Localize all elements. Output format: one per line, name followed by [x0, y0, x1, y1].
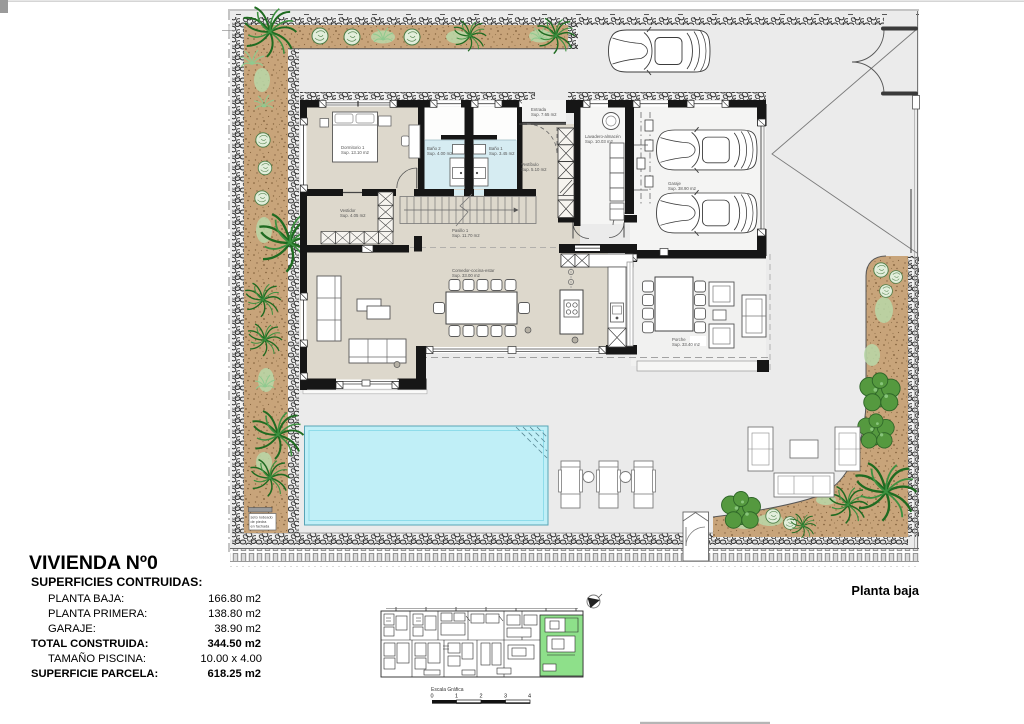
svg-text:2: 2 [480, 694, 483, 700]
svg-text:344.50 m2: 344.50 m2 [208, 638, 262, 650]
svg-text:seto rodeado: seto rodeado [251, 516, 273, 520]
svg-text:138.80 m2: 138.80 m2 [208, 608, 261, 620]
svg-text:VIVIENDA Nº0: VIVIENDA Nº0 [29, 552, 158, 574]
svg-text:Sup. 38.90 m2: Sup. 38.90 m2 [668, 186, 697, 191]
svg-text:1: 1 [455, 694, 458, 700]
svg-text:SUPERFICIE PARCELA:: SUPERFICIE PARCELA: [31, 668, 158, 680]
svg-text:Sup. 4.00 m2: Sup. 4.00 m2 [427, 151, 453, 156]
svg-text:166.80 m2: 166.80 m2 [208, 593, 261, 605]
svg-text:10.00 x 4.00: 10.00 x 4.00 [200, 653, 262, 665]
svg-text:Sup. 4.05 m2: Sup. 4.05 m2 [340, 213, 366, 218]
svg-text:Sup. 33.40 m2: Sup. 33.40 m2 [672, 342, 701, 347]
svg-text:618.25 m2: 618.25 m2 [208, 668, 262, 680]
svg-text:PLANTA PRIMERA:: PLANTA PRIMERA: [48, 608, 147, 620]
svg-text:Sup. 13.10 m2: Sup. 13.10 m2 [341, 150, 370, 155]
svg-text:0: 0 [431, 694, 434, 700]
svg-text:Sup. 10.03 m2: Sup. 10.03 m2 [585, 139, 614, 144]
svg-text:TOTAL CONSTRUIDA:: TOTAL CONSTRUIDA: [31, 638, 148, 650]
svg-text:en fachada: en fachada [251, 525, 271, 529]
svg-text:PLANTA BAJA:: PLANTA BAJA: [48, 593, 124, 605]
svg-text:TAMAÑO PISCINA:: TAMAÑO PISCINA: [48, 652, 146, 665]
svg-text:3: 3 [504, 694, 507, 700]
svg-text:38.90 m2: 38.90 m2 [214, 623, 261, 635]
svg-text:Sup. 33.00 m2: Sup. 33.00 m2 [452, 273, 481, 278]
svg-text:Sup. 5.10 m2: Sup. 5.10 m2 [521, 167, 547, 172]
svg-text:Planta baja: Planta baja [851, 583, 919, 598]
svg-text:SUPERFICIES CONTRUIDAS:: SUPERFICIES CONTRUIDAS: [31, 575, 202, 589]
svg-text:GARAJE:: GARAJE: [48, 623, 96, 635]
svg-text:Sup. 11.70 m2: Sup. 11.70 m2 [452, 233, 480, 238]
svg-text:Escala Gráfica: Escala Gráfica [431, 687, 464, 693]
svg-text:de piedra: de piedra [251, 520, 268, 524]
svg-text:Sup. 7.65 m2: Sup. 7.65 m2 [531, 112, 557, 117]
svg-text:Sup. 3.45 m2: Sup. 3.45 m2 [489, 151, 515, 156]
svg-text:4: 4 [528, 694, 531, 700]
